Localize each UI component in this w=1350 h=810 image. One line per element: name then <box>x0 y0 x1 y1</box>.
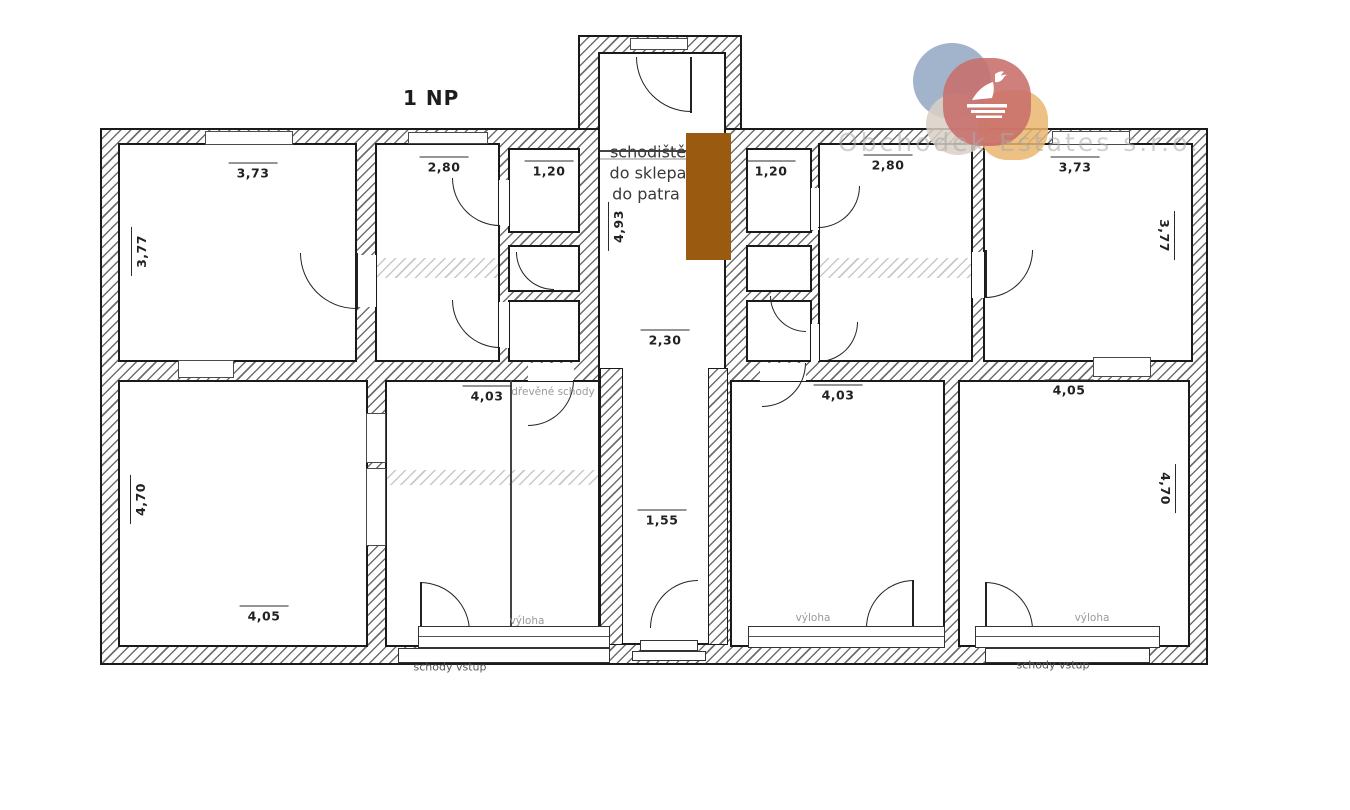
logo-boat-icon <box>955 68 1019 134</box>
door-gap-closet-top <box>499 180 509 226</box>
door-leaf <box>985 582 987 630</box>
dimension-label: 4,03 <box>814 385 863 404</box>
opening-topright-bottomright <box>1093 357 1151 377</box>
watermark-text: Obchodek Estates s.r.o. <box>838 128 1201 157</box>
staircase-highlight <box>686 133 731 260</box>
corridor-step-2 <box>632 651 706 661</box>
label-shopwindow-right: výloha <box>1075 612 1110 624</box>
dimension-label: 4,70 <box>115 491 164 510</box>
room-bottom-mid-left <box>385 380 600 647</box>
room-left-closet-bottom <box>508 300 580 362</box>
label-wooden-stairs: dřevěné schody <box>511 386 595 398</box>
shopfront-right <box>975 626 1160 648</box>
shopfront-mid <box>748 626 945 648</box>
dimension-label: 4,93 <box>593 218 642 237</box>
door-gap-top-left <box>357 255 376 307</box>
dimension-label: 1,20 <box>525 161 574 180</box>
label-entry-stairs-right: schody vstup <box>1017 659 1090 672</box>
dimension-label: 2,80 <box>864 155 913 174</box>
door-leaf <box>356 253 358 309</box>
dimension-label: 2,80 <box>420 157 469 176</box>
stair-note-line2: do sklepa <box>610 164 687 183</box>
label-shopwindow-left: výloha <box>510 615 545 627</box>
partition-line <box>510 380 512 647</box>
dimension-label: 4,03 <box>463 386 512 405</box>
label-shopwindow-mid: výloha <box>796 612 831 624</box>
dimension-label: 2,30 <box>641 330 690 349</box>
window-top-left <box>205 131 293 145</box>
stair-note-line1: schodiště <box>610 143 686 162</box>
window-shaft <box>630 38 688 50</box>
label-entry-stairs-left: schody vstup <box>414 661 487 674</box>
dimension-label: 4,70 <box>1143 480 1192 499</box>
corridor-left-wall <box>600 368 623 645</box>
removed-wall-band-left <box>377 258 498 278</box>
corridor-right-wall <box>708 368 728 645</box>
dimension-label: 1,55 <box>638 510 687 529</box>
room-right-closet-mid <box>746 245 812 292</box>
dimension-label: 1,20 <box>747 161 796 180</box>
dimension-label: 3,77 <box>116 243 165 262</box>
door-gap-closet-bottom <box>499 302 509 348</box>
dimension-label: 3,73 <box>229 163 278 182</box>
dimension-label: 3,77 <box>1142 227 1191 246</box>
door-leaf <box>690 57 692 113</box>
dimension-label: 4,05 <box>1045 380 1094 399</box>
door-leaf <box>985 250 987 298</box>
removed-wall-band-bottom <box>387 470 598 485</box>
shopfront-left <box>418 626 610 648</box>
plan-title: 1 NP <box>403 86 459 110</box>
door-leaf <box>912 580 914 630</box>
dimension-label: 4,05 <box>240 606 289 625</box>
stair-note-line3: do patra <box>612 185 680 204</box>
removed-wall-band-right <box>820 258 971 278</box>
corridor-step-1 <box>640 640 698 651</box>
opening-bl-wall-upper <box>366 413 386 463</box>
opening-topleft-bottomleft <box>178 360 234 378</box>
window-left-280 <box>408 132 488 144</box>
floor-plan-canvas: 1 NP <box>0 0 1350 810</box>
door-gap-wood-stairs <box>528 363 574 381</box>
door-gap-top-right <box>972 252 984 298</box>
dimension-label: 3,73 <box>1051 157 1100 176</box>
door-leaf <box>420 582 422 632</box>
opening-bl-wall-lower <box>366 468 386 546</box>
